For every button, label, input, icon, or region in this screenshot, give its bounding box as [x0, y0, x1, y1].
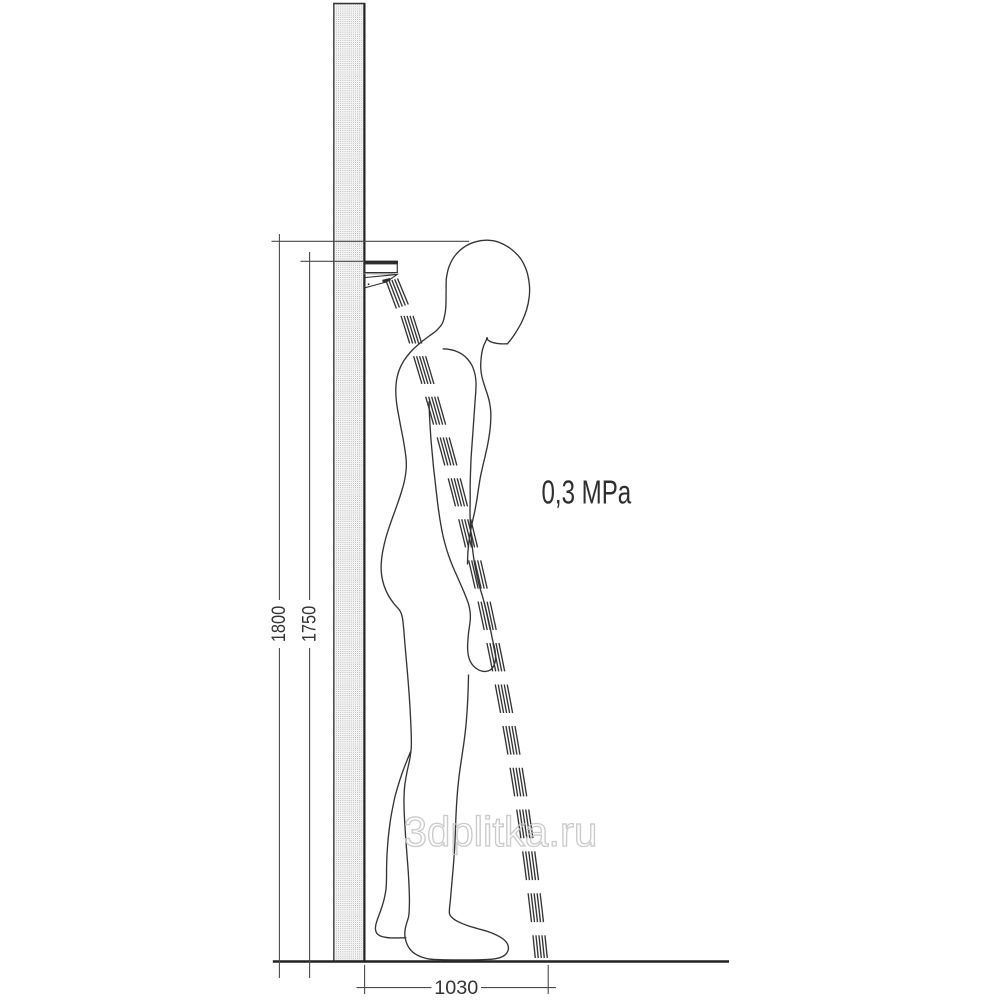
svg-text:1750: 1750 — [298, 606, 319, 642]
svg-text:1030: 1030 — [434, 977, 478, 999]
svg-text:1800: 1800 — [268, 606, 289, 642]
svg-text:0,3 MPa: 0,3 MPa — [542, 475, 632, 512]
svg-text:3dplitka.ru: 3dplitka.ru — [404, 808, 598, 855]
